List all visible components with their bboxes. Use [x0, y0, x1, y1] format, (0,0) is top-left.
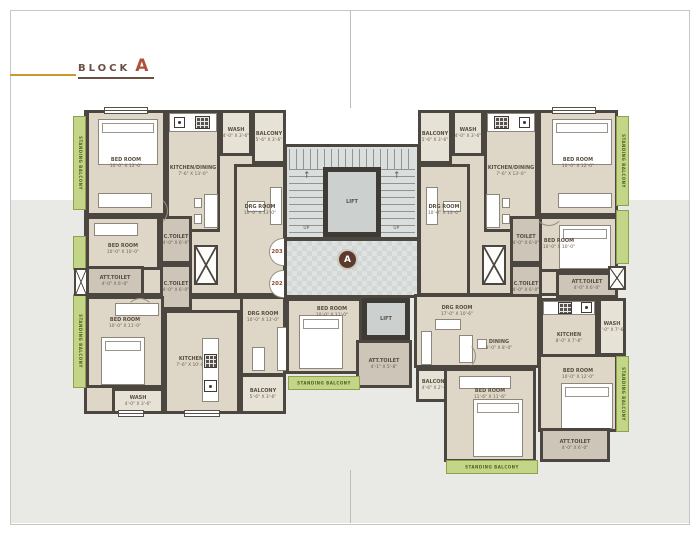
- sink-icon: [558, 302, 572, 314]
- room-att-toilet-core: ATT.TOILET4'-1" X 5'-8": [356, 340, 412, 388]
- standing-balcony-strip: STANDING BALCONY: [616, 116, 629, 206]
- room-drg-202: DRG ROOM10'-0" X 13'-0": [240, 296, 286, 376]
- title-gold-line: [10, 74, 76, 76]
- room-dim: 4'-0" X 6'-0": [560, 445, 591, 450]
- room-drg-dining-201: DRG ROOM17'-0" X 10'-6" DINING8'-0" X 8'…: [414, 294, 540, 368]
- chair-icon: [502, 214, 510, 224]
- window-icon: [552, 107, 596, 114]
- room-dim: 10'-0" X 13'-0": [428, 210, 460, 215]
- stove-icon: [204, 380, 217, 392]
- bed-icon: [561, 383, 613, 429]
- room-dim: 4'-0" X 6'-0": [572, 285, 603, 290]
- wardrobe-icon: [94, 223, 138, 236]
- standing-balcony-strip: STANDING BALCONY: [288, 376, 360, 390]
- room-dim: 10'-0" X 13'-0": [247, 317, 279, 322]
- room-toilet-204: TOILET4'-0" X 6'-0": [510, 216, 542, 264]
- stove-icon: [174, 117, 185, 128]
- up-arrow-icon: ↑: [303, 172, 311, 181]
- door-arc-icon: [448, 342, 476, 370]
- up-label: UP: [303, 225, 309, 230]
- room-dim: 7'-6" X 13'-0": [488, 171, 534, 176]
- window-icon: [104, 107, 148, 114]
- standing-balcony-label: STANDING BALCONY: [297, 381, 351, 386]
- room-bedroom-202b: BED ROOM10'-0" X 11'-0": [286, 298, 362, 374]
- table-icon: [252, 347, 265, 371]
- standing-balcony-strip: STANDING BALCONY: [73, 294, 86, 388]
- up-label: UP: [393, 225, 399, 230]
- duct-shaft-x-icon: [482, 245, 506, 285]
- center-fold-line-bottom: [350, 470, 351, 523]
- room-dim: 4'-0" X 3'-6": [455, 133, 482, 138]
- door-arc-icon: [534, 196, 564, 226]
- stair-landing-treads: [289, 149, 415, 169]
- room-c-toilet-203a: C.TOILET4'-0" X 6'-0": [160, 216, 192, 264]
- stove-icon: [519, 117, 530, 128]
- room-label: DRG ROOM: [247, 311, 279, 317]
- room-label: BED ROOM: [107, 243, 139, 249]
- room-dim: 4'-0" X 6'-0": [513, 240, 540, 245]
- sink-icon: [195, 116, 210, 129]
- room-label: BED ROOM: [474, 388, 506, 394]
- door-arc-icon: [126, 298, 154, 326]
- room-dim: 8'-0" X 8'-0": [486, 345, 513, 350]
- room-dim: 7'-6" X 13'-0": [170, 171, 216, 176]
- chair-icon: [194, 214, 202, 224]
- standing-balcony-strip: [616, 210, 629, 264]
- room-balcony-202: BALCONY5'-6" X 3'-6": [240, 374, 286, 414]
- block-label: BLOCK: [78, 63, 130, 74]
- chair-icon: [194, 198, 202, 208]
- center-fold-line-top: [350, 11, 351, 108]
- room-dim: 10'-0" X 13'-0": [244, 210, 276, 215]
- sink-icon: [494, 116, 509, 129]
- dining-table-icon: [486, 194, 500, 228]
- bed-icon: [473, 399, 523, 457]
- page-title: BLOCKA: [78, 56, 154, 79]
- room-dim: 5'-6" X 3'-6": [422, 137, 449, 142]
- standing-balcony-label: STANDING BALCONY: [620, 367, 625, 421]
- lift-label: LIFT: [380, 316, 392, 322]
- room-att-toilet-201: ATT.TOILET4'-0" X 6'-0": [540, 428, 610, 462]
- block-letter: A: [135, 56, 148, 76]
- bed-icon: [101, 337, 145, 385]
- standing-balcony-strip: [73, 236, 86, 270]
- room-dim: 10'-0" X 10'-0": [543, 244, 575, 249]
- wardrobe-icon: [558, 193, 612, 208]
- standing-balcony-label: STANDING BALCONY: [77, 136, 82, 190]
- kitchen-counter: [202, 338, 219, 402]
- room-wash-203: WASH4'-0" X 3'-6": [220, 110, 252, 156]
- wardrobe-icon: [459, 376, 511, 389]
- lift-label: LIFT: [346, 199, 358, 205]
- room-att-toilet-203: ATT.TOILET4'-0" X 6'-0": [86, 266, 144, 296]
- sofa-icon: [421, 331, 432, 365]
- duct-shaft-x-icon: [74, 268, 88, 296]
- room-c-toilet-203b: C.TOILET4'-0" X 6'-0": [160, 264, 192, 310]
- up-arrow-icon: ↑: [393, 172, 401, 181]
- room-dim: 4'-1" X 5'-8": [369, 364, 400, 369]
- room-dim: 3'-0" X 7'-6": [599, 327, 626, 332]
- duct-shaft-x-icon: [194, 245, 218, 285]
- sofa-icon: [435, 319, 461, 330]
- room-wash-204: WASH4'-0" X 3'-6": [452, 110, 484, 156]
- room-dim: 17'-0" X 10'-6": [441, 311, 473, 316]
- duct-shaft-x-icon: [608, 266, 626, 290]
- room-bedroom-201a: BED ROOM11'-6" X 11'-6": [444, 368, 536, 462]
- badge-letter: A: [344, 255, 351, 265]
- standing-balcony-label: STANDING BALCONY: [465, 465, 519, 470]
- room-wash-201: WASH3'-0" X 7'-6": [598, 298, 626, 356]
- room-dim: 4'-0" X 3'-6": [223, 133, 250, 138]
- room-label: DRG ROOM: [428, 204, 460, 210]
- room-balcony-203: BALCONY5'-6" X 3'-6": [252, 110, 286, 164]
- window-icon: [184, 410, 220, 417]
- door-arc-icon: [138, 196, 168, 226]
- room-label: DRG ROOM: [244, 204, 276, 210]
- standing-balcony-label: STANDING BALCONY: [77, 314, 82, 368]
- chair-icon: [502, 198, 510, 208]
- room-dim: 10'-0" X 12'-0": [110, 163, 142, 168]
- bed-icon: [299, 315, 343, 369]
- room-dim: 4'-0" X 6'-0": [100, 281, 131, 286]
- floor-plan-page: BLOCKA BED ROOM10'-0" X 12'-0" KITCHEN/D…: [0, 0, 700, 535]
- sink-icon: [204, 354, 217, 368]
- room-dim: 11'-6" X 11'-6": [474, 394, 506, 399]
- stove-icon: [581, 302, 592, 313]
- room-dim: 10'-0" X 10'-0": [107, 249, 139, 254]
- standing-balcony-strip: STANDING BALCONY: [73, 116, 86, 210]
- room-dim: 4'-0" X 6'-0": [163, 240, 190, 245]
- room-dim: 4'-0" X 3'-6": [125, 401, 152, 406]
- standing-balcony-label: STANDING BALCONY: [620, 134, 625, 188]
- room-dim: 5'-6" X 3'-6": [256, 137, 283, 142]
- standing-balcony-strip: STANDING BALCONY: [446, 460, 538, 474]
- room-dim: 10'-0" X 11'-0": [316, 313, 348, 318]
- room-dim: 10'-0" X 12'-0": [562, 163, 594, 168]
- room-dim: 4'-0" X 6'-0": [163, 287, 190, 292]
- room-dim: 5'-6" X 3'-6": [250, 394, 277, 399]
- lift-upper: LIFT: [323, 167, 381, 237]
- standing-balcony-strip: STANDING BALCONY: [616, 356, 629, 432]
- room-dim: 4'-0" X 6'-0": [513, 287, 540, 292]
- lift-lower: LIFT: [362, 298, 410, 340]
- room-dim: 8'-0" X 7'-6": [556, 339, 583, 344]
- dining-table-icon: [204, 194, 218, 228]
- room-drg-204: DRG ROOM10'-0" X 13'-0": [418, 164, 470, 296]
- block-a-badge: A: [337, 249, 358, 270]
- window-icon: [118, 410, 144, 417]
- room-balcony-204: BALCONY5'-6" X 3'-6": [418, 110, 452, 164]
- room-bedroom-201b: BED ROOM10'-0" X 12'-0": [538, 354, 618, 432]
- room-dim: 10'-0" X 12'-0": [562, 375, 594, 380]
